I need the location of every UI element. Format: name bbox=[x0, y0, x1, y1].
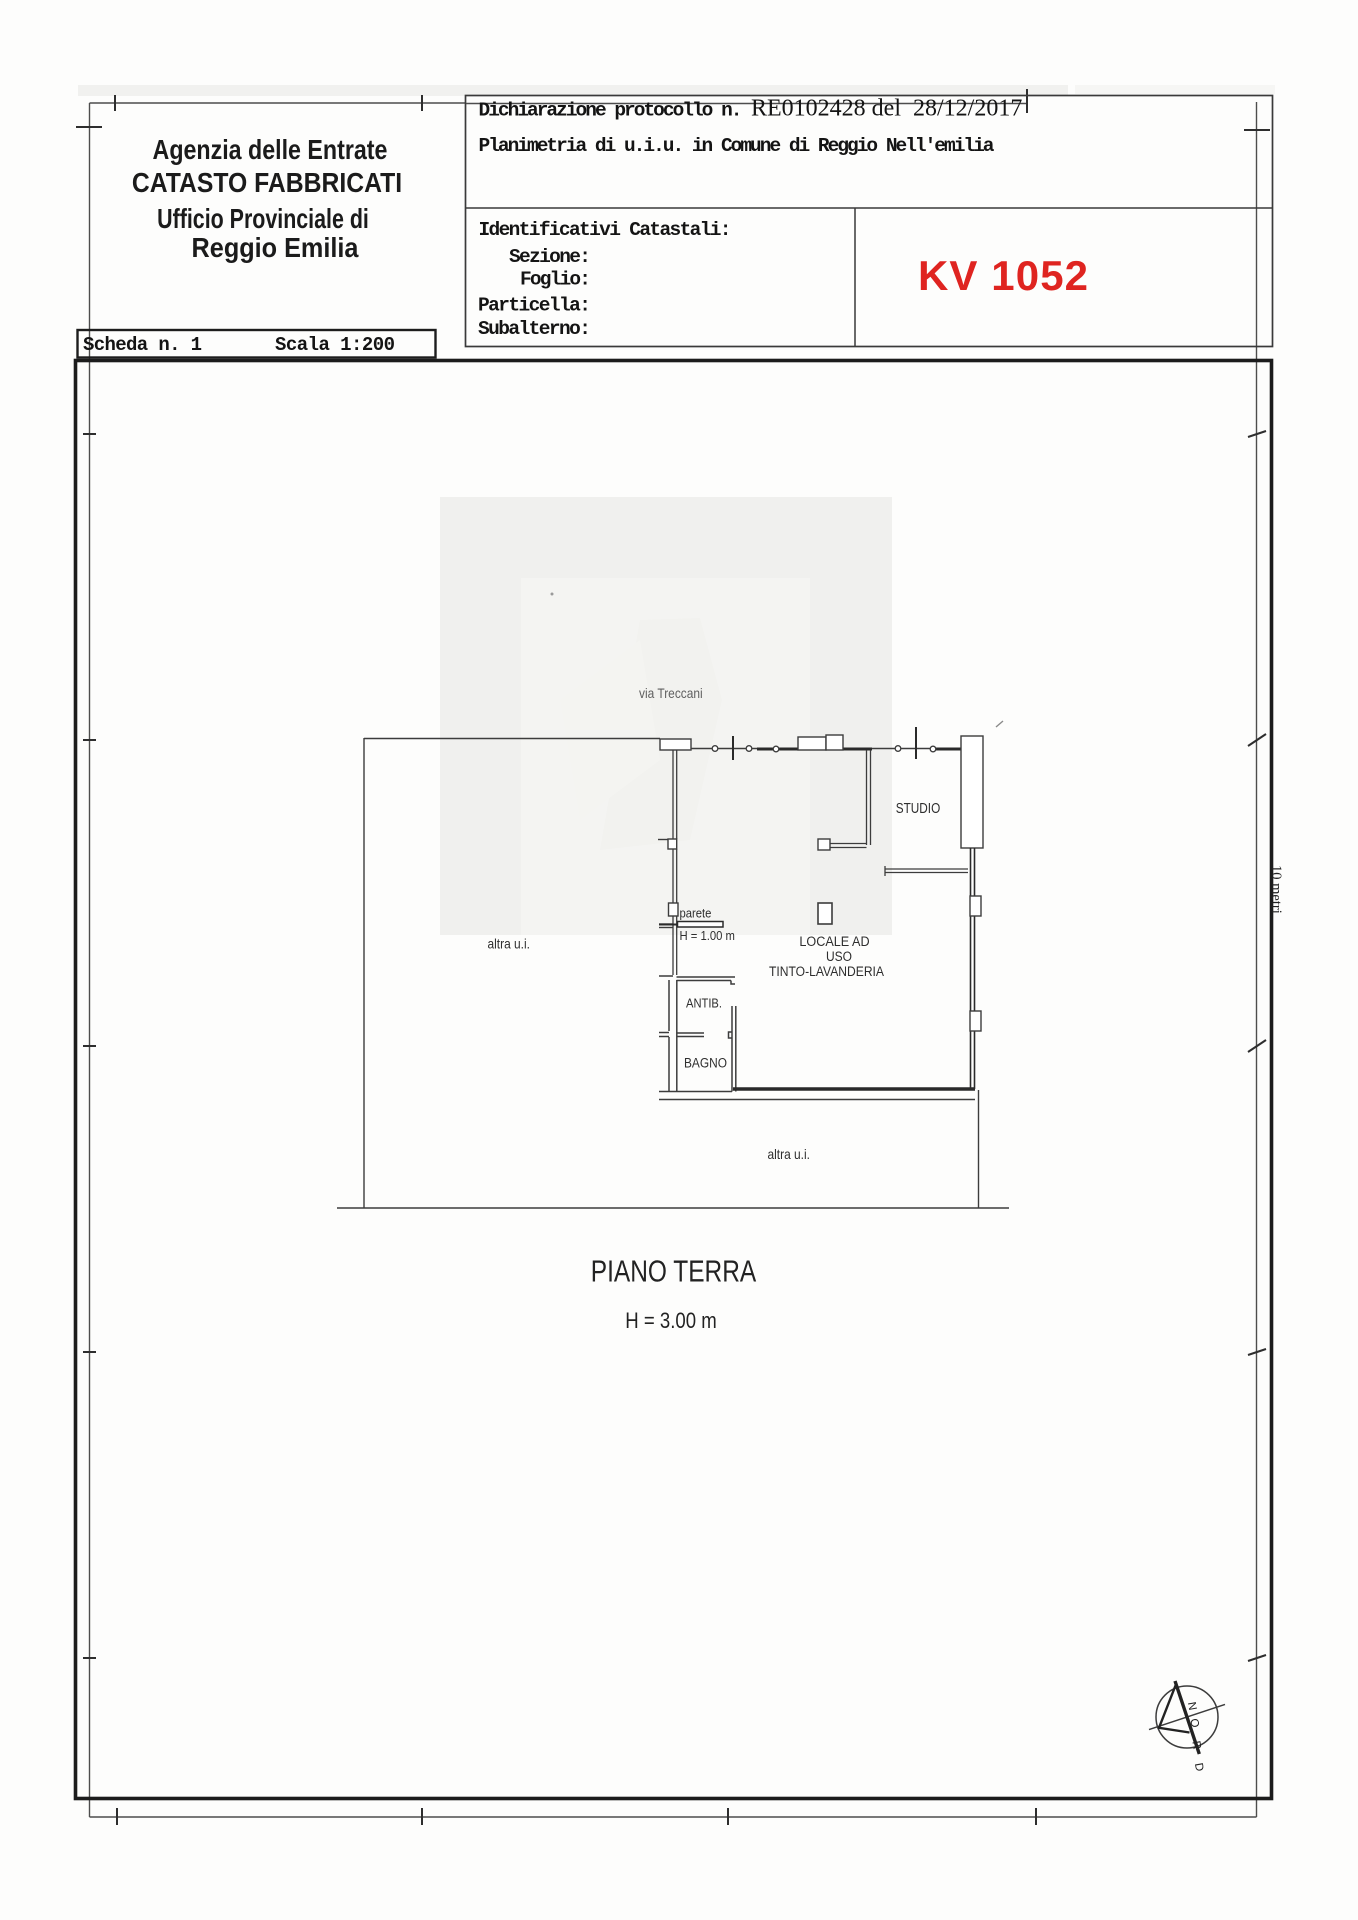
svg-text:Reggio Emilia: Reggio Emilia bbox=[192, 232, 359, 263]
svg-text:LOCALE AD: LOCALE AD bbox=[799, 933, 869, 949]
svg-text:H = 1.00 m: H = 1.00 m bbox=[680, 928, 735, 943]
svg-text:KV 1052: KV 1052 bbox=[918, 252, 1088, 299]
svg-text:altra u.i.: altra u.i. bbox=[768, 1146, 810, 1162]
svg-text:USO: USO bbox=[826, 948, 852, 964]
svg-text:STUDIO: STUDIO bbox=[896, 800, 940, 816]
svg-text:BAGNO: BAGNO bbox=[684, 1055, 727, 1071]
svg-text:RE0102428 del 28/12/2017: RE0102428 del 28/12/2017 bbox=[751, 96, 1022, 122]
svg-text:D: D bbox=[1192, 1762, 1205, 1772]
svg-text:CATASTO FABBRICATI: CATASTO FABBRICATI bbox=[132, 167, 402, 199]
svg-text:Particella:: Particella: bbox=[478, 295, 591, 317]
svg-text:R: R bbox=[1189, 1740, 1202, 1750]
svg-text:Subalterno:: Subalterno: bbox=[478, 318, 591, 340]
svg-text:Sezione:: Sezione: bbox=[509, 246, 591, 268]
svg-text:N: N bbox=[1185, 1701, 1198, 1711]
svg-text:H = 3.00 m: H = 3.00 m bbox=[625, 1308, 716, 1333]
svg-text:PIANO TERRA: PIANO TERRA bbox=[591, 1254, 757, 1288]
svg-text:Scala 1:200: Scala 1:200 bbox=[275, 334, 395, 356]
svg-text:Dichiarazione protocollo n.: Dichiarazione protocollo n. bbox=[479, 100, 743, 122]
svg-text:10 metri: 10 metri bbox=[1268, 865, 1284, 914]
svg-text:Identificativi Catastali:: Identificativi Catastali: bbox=[479, 219, 732, 241]
svg-text:O: O bbox=[1187, 1718, 1200, 1729]
svg-text:Ufficio Provinciale di: Ufficio Provinciale di bbox=[157, 205, 369, 235]
svg-text:Planimetria di u.i.u. in Comun: Planimetria di u.i.u. in Comune di Reggi… bbox=[479, 135, 995, 157]
svg-text:Agenzia delle Entrate: Agenzia delle Entrate bbox=[153, 135, 388, 165]
svg-text:Scheda n. 1: Scheda n. 1 bbox=[83, 334, 202, 356]
svg-text:parete: parete bbox=[680, 906, 712, 921]
svg-text:altra u.i.: altra u.i. bbox=[488, 936, 530, 952]
svg-text:Foglio:: Foglio: bbox=[520, 269, 591, 291]
svg-text:TINTO-LAVANDERIA: TINTO-LAVANDERIA bbox=[769, 963, 884, 979]
svg-text:via Treccani: via Treccani bbox=[639, 685, 703, 701]
svg-text:ANTIB.: ANTIB. bbox=[686, 996, 722, 1011]
